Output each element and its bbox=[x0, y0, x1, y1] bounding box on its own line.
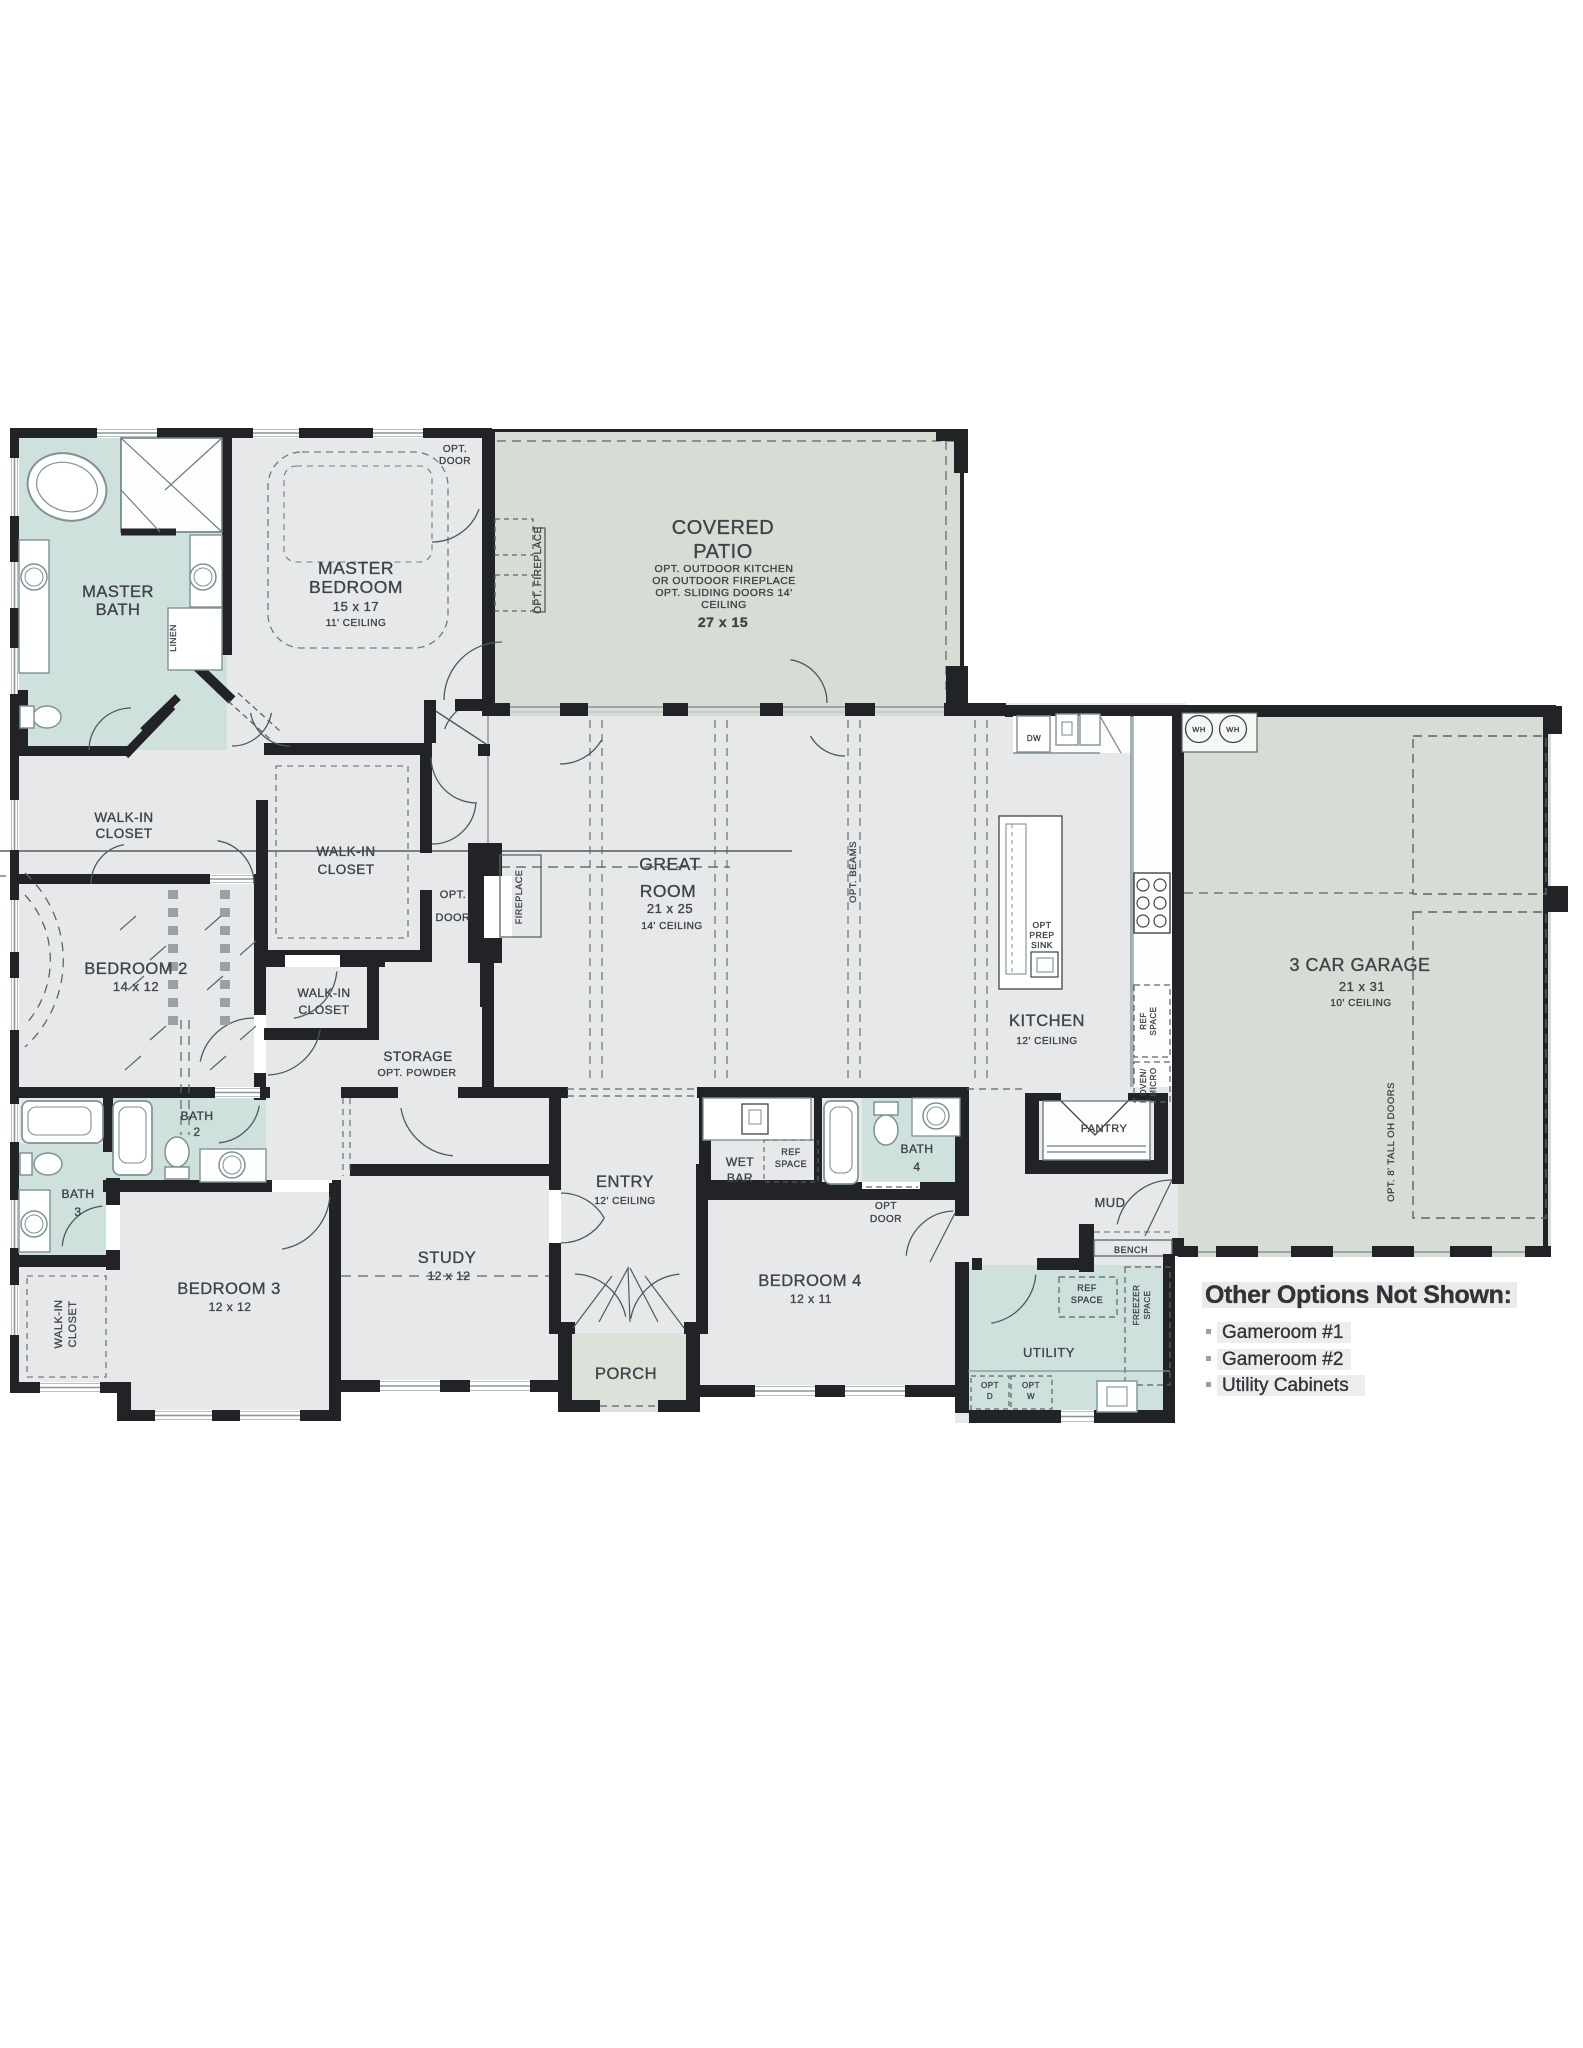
svg-text:REF: REF bbox=[1139, 1012, 1148, 1030]
svg-text:Gameroom #1: Gameroom #1 bbox=[1222, 1322, 1343, 1343]
svg-text:STORAGE: STORAGE bbox=[383, 1049, 452, 1064]
svg-text:MUD: MUD bbox=[1094, 1195, 1125, 1210]
svg-text:OR OUTDOOR FIREPLACE: OR OUTDOOR FIREPLACE bbox=[652, 575, 796, 587]
svg-text:OPT.: OPT. bbox=[443, 444, 467, 455]
svg-text:21 x 25: 21 x 25 bbox=[647, 901, 693, 916]
svg-text:2: 2 bbox=[193, 1125, 200, 1139]
svg-text:BATH: BATH bbox=[61, 1187, 94, 1201]
svg-text:PREP: PREP bbox=[1029, 930, 1054, 940]
svg-text:WET: WET bbox=[726, 1155, 754, 1169]
svg-text:OPT.: OPT. bbox=[440, 889, 466, 901]
svg-text:SPACE: SPACE bbox=[1071, 1295, 1103, 1305]
svg-text:OPT. 8' TALL OH DOORS: OPT. 8' TALL OH DOORS bbox=[1386, 1082, 1397, 1202]
svg-text:REF: REF bbox=[1077, 1283, 1097, 1293]
svg-text:OPT. FIREPLACE: OPT. FIREPLACE bbox=[533, 526, 544, 614]
svg-text:OPT: OPT bbox=[875, 1201, 897, 1212]
svg-text:REF: REF bbox=[781, 1147, 801, 1157]
svg-text:Utility Cabinets: Utility Cabinets bbox=[1222, 1375, 1349, 1396]
svg-text:BATH: BATH bbox=[96, 601, 141, 619]
svg-text:BATH: BATH bbox=[900, 1142, 933, 1156]
svg-text:Gameroom #2: Gameroom #2 bbox=[1222, 1349, 1343, 1370]
svg-text:12 x 12: 12 x 12 bbox=[209, 1300, 252, 1314]
svg-text:PORCH: PORCH bbox=[595, 1365, 657, 1383]
svg-text:SPACE: SPACE bbox=[1149, 1006, 1158, 1035]
svg-text:Other Options Not Shown:: Other Options Not Shown: bbox=[1205, 1281, 1512, 1309]
svg-text:3 CAR GARAGE: 3 CAR GARAGE bbox=[1289, 955, 1430, 975]
svg-text:SINK: SINK bbox=[1031, 940, 1053, 950]
svg-text:BENCH: BENCH bbox=[1114, 1245, 1148, 1255]
svg-text:CLOSET: CLOSET bbox=[95, 826, 152, 841]
svg-text:OPT. BEAMS: OPT. BEAMS bbox=[848, 841, 859, 903]
svg-text:12 x 12: 12 x 12 bbox=[428, 1269, 471, 1283]
svg-text:CLOSET: CLOSET bbox=[298, 1003, 349, 1017]
svg-text:OPT. POWDER: OPT. POWDER bbox=[377, 1067, 456, 1079]
svg-text:LINEN: LINEN bbox=[168, 624, 178, 652]
svg-text:DW: DW bbox=[1027, 734, 1041, 743]
svg-text:OPT: OPT bbox=[981, 1381, 999, 1390]
svg-text:WH: WH bbox=[1192, 725, 1206, 734]
svg-text:FREEZER: FREEZER bbox=[1132, 1285, 1141, 1326]
svg-text:MASTER: MASTER bbox=[318, 558, 394, 578]
svg-text:KITCHEN: KITCHEN bbox=[1009, 1012, 1085, 1030]
svg-text:WALK-IN: WALK-IN bbox=[53, 1300, 65, 1349]
svg-text:12' CEILING: 12' CEILING bbox=[1016, 1036, 1077, 1047]
svg-text:OPT: OPT bbox=[1022, 1381, 1040, 1390]
svg-text:OPT: OPT bbox=[1033, 920, 1052, 930]
svg-text:MICRO: MICRO bbox=[1149, 1067, 1158, 1096]
svg-text:BATH: BATH bbox=[180, 1109, 213, 1123]
svg-text:STUDY: STUDY bbox=[418, 1249, 476, 1267]
svg-text:15 x 17: 15 x 17 bbox=[333, 599, 379, 614]
svg-text:BEDROOM 3: BEDROOM 3 bbox=[177, 1280, 281, 1298]
svg-text:ROOM: ROOM bbox=[640, 881, 696, 901]
svg-text:CLOSET: CLOSET bbox=[67, 1300, 79, 1347]
svg-text:DOOR: DOOR bbox=[439, 456, 471, 467]
svg-text:W: W bbox=[1027, 1392, 1035, 1401]
svg-text:14 x 12: 14 x 12 bbox=[113, 979, 159, 994]
svg-text:4: 4 bbox=[913, 1160, 920, 1174]
svg-text:WALK-IN: WALK-IN bbox=[94, 810, 153, 825]
svg-text:BEDROOM 2: BEDROOM 2 bbox=[84, 960, 188, 978]
svg-text:WALK-IN: WALK-IN bbox=[316, 844, 375, 859]
svg-text:GREAT: GREAT bbox=[639, 854, 701, 874]
svg-text:SPACE: SPACE bbox=[775, 1159, 807, 1169]
svg-text:27 x 15: 27 x 15 bbox=[698, 614, 748, 630]
svg-text:12 x 11: 12 x 11 bbox=[790, 1292, 832, 1306]
svg-text:10' CEILING: 10' CEILING bbox=[1330, 998, 1391, 1009]
svg-text:DOOR: DOOR bbox=[436, 912, 471, 924]
svg-text:PATIO: PATIO bbox=[693, 541, 753, 563]
svg-text:DOOR: DOOR bbox=[870, 1214, 902, 1225]
svg-text:21 x 31: 21 x 31 bbox=[1339, 979, 1385, 994]
svg-text:ENTRY: ENTRY bbox=[596, 1173, 654, 1191]
svg-text:MASTER: MASTER bbox=[82, 583, 154, 601]
svg-text:OPT. OUTDOOR KITCHEN: OPT. OUTDOOR KITCHEN bbox=[655, 563, 794, 575]
svg-text:BEDROOM: BEDROOM bbox=[309, 577, 403, 597]
svg-text:CEILING: CEILING bbox=[701, 599, 747, 611]
svg-text:11' CEILING: 11' CEILING bbox=[326, 618, 387, 629]
svg-text:3: 3 bbox=[74, 1205, 81, 1219]
svg-text:OVEN/: OVEN/ bbox=[1139, 1068, 1148, 1096]
svg-text:12' CEILING: 12' CEILING bbox=[594, 1196, 655, 1207]
svg-text:WALK-IN: WALK-IN bbox=[297, 986, 350, 1000]
svg-text:SPACE: SPACE bbox=[1143, 1290, 1152, 1319]
svg-text:14' CEILING: 14' CEILING bbox=[641, 921, 702, 932]
svg-text:OPT. SLIDING DOORS 14': OPT. SLIDING DOORS 14' bbox=[655, 587, 792, 599]
svg-text:CLOSET: CLOSET bbox=[317, 862, 374, 877]
svg-text:D: D bbox=[987, 1392, 993, 1401]
svg-text:UTILITY: UTILITY bbox=[1023, 1345, 1075, 1360]
svg-text:PANTRY: PANTRY bbox=[1081, 1123, 1128, 1135]
svg-text:WH: WH bbox=[1226, 725, 1240, 734]
svg-text:BAR: BAR bbox=[727, 1171, 753, 1185]
svg-text:FIREPLACE: FIREPLACE bbox=[514, 870, 524, 925]
svg-text:BEDROOM 4: BEDROOM 4 bbox=[758, 1272, 862, 1290]
svg-text:COVERED: COVERED bbox=[672, 517, 774, 539]
